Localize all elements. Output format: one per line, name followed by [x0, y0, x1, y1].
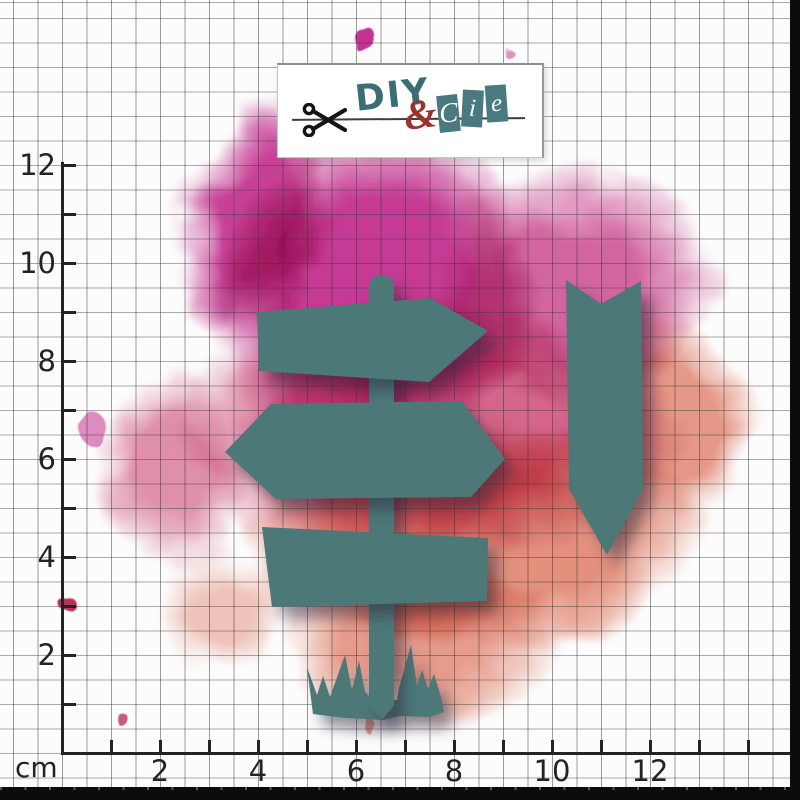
ruler-tick-h14 — [747, 740, 750, 753]
ruler-tick-v9 — [63, 311, 76, 314]
ruler-label-v8: 8 — [0, 344, 56, 378]
cie-letter-box: e — [485, 84, 509, 122]
ruler-label-h2: 2 — [138, 754, 182, 788]
ruler-tick-v2 — [63, 654, 76, 657]
ruler-tick-h11 — [600, 740, 603, 753]
ruler-label-v10: 10 — [0, 246, 56, 280]
ruler-label-h12: 12 — [628, 754, 672, 788]
ruler-tick-h2 — [159, 740, 162, 753]
ruler-label-h10: 10 — [530, 754, 574, 788]
ruler-tick-v4 — [63, 556, 76, 559]
ruler-label-v2: 2 — [0, 638, 56, 672]
scissors-icon — [302, 103, 348, 137]
ruler-unit-label: cm — [15, 751, 58, 784]
product-image: 24681012 24681012 cm DIY & C — [0, 0, 800, 800]
ruler-tick-h4 — [257, 740, 260, 753]
ruler-label-v4: 4 — [0, 540, 56, 574]
ruler-tick-h9 — [502, 740, 505, 753]
brand-logo: DIY & C i e — [277, 63, 544, 158]
ruler-tick-h7 — [404, 740, 407, 753]
brand-ampersand: & — [401, 89, 439, 141]
ruler-label-h8: 8 — [432, 754, 476, 788]
cie-letter-box: i — [461, 89, 484, 127]
ruler-label-h6: 6 — [334, 754, 378, 788]
brand-cie-boxes: C i e — [438, 87, 507, 124]
cie-letter-box: C — [436, 94, 461, 133]
ruler-tick-v5 — [63, 507, 76, 510]
ruler-tick-h5 — [306, 740, 309, 753]
ruler-tick-h1 — [110, 740, 113, 753]
ruler-tick-h3 — [208, 740, 211, 753]
ruler-label-v6: 6 — [0, 442, 56, 476]
scan-edge-bottom — [0, 787, 800, 800]
ruler-tick-h12 — [649, 740, 652, 753]
ruler-tick-h10 — [551, 740, 554, 753]
ruler-tick-h8 — [453, 740, 456, 753]
ruler-tick-h6 — [355, 740, 358, 753]
ruler-tick-v1 — [63, 703, 76, 706]
scan-edge-right — [790, 0, 800, 800]
ruler-tick-h13 — [698, 740, 701, 753]
ruler-tick-v10 — [63, 262, 76, 265]
ruler-tick-v11 — [63, 213, 76, 216]
ruler-tick-v3 — [63, 605, 76, 608]
ruler-tick-v8 — [63, 360, 76, 363]
ruler-label-v12: 12 — [0, 148, 56, 182]
ruler-tick-v7 — [63, 409, 76, 412]
ruler-label-h4: 4 — [236, 754, 280, 788]
ruler-tick-v12 — [63, 164, 76, 167]
ruler-tick-v6 — [63, 458, 76, 461]
